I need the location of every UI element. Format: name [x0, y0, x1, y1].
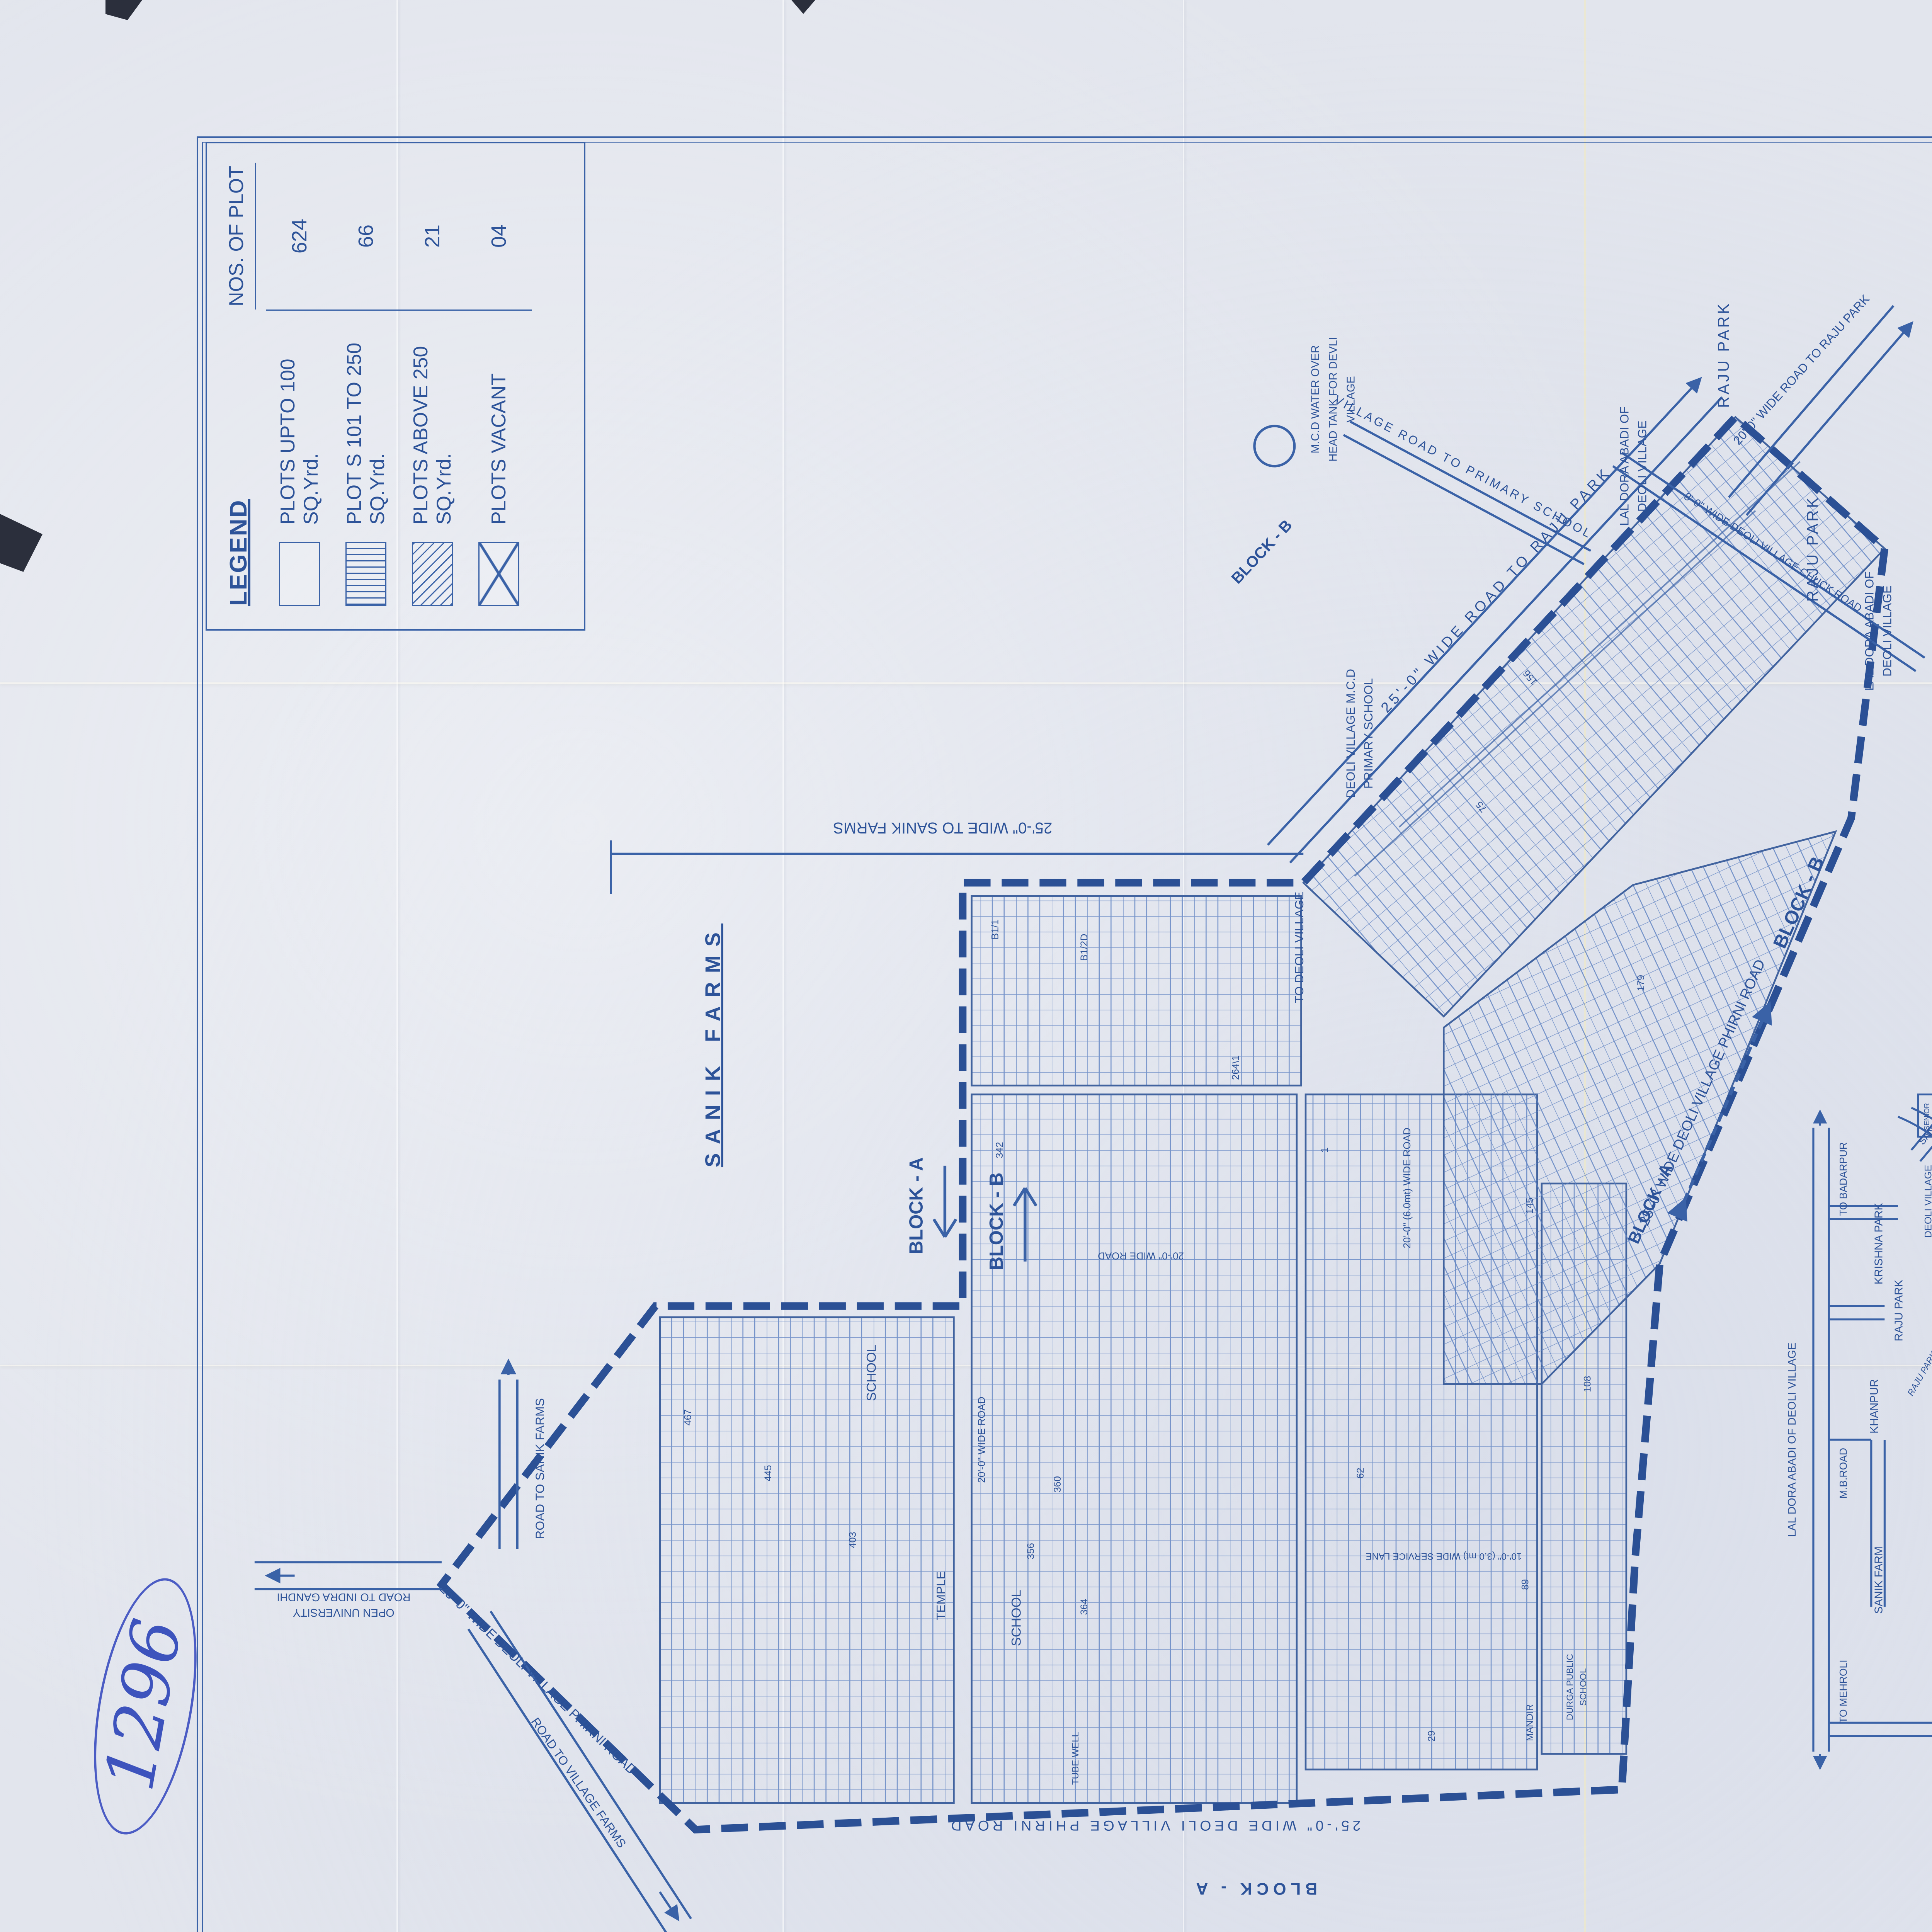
area-label-primary-school: PRIMARY SCHOOL: [1361, 678, 1375, 789]
plot-block-west: [660, 1317, 954, 1803]
road-label: 20'-0" WIDE ROAD: [976, 1396, 987, 1483]
block-a-marker: BLOCK - A: [906, 1157, 927, 1254]
plot-number: 264\1: [1230, 1055, 1241, 1080]
road-label: 25'-0" WIDE TO SANIK FARMS: [833, 819, 1052, 837]
road-label: VILLAGE ROAD TO PRIMARY SCHOOL: [1332, 393, 1595, 541]
area-label-raju-park: RAJU PARK: [1714, 301, 1732, 408]
key-label: M.B.ROAD: [1837, 1448, 1849, 1498]
plot-number: 89: [1520, 1579, 1531, 1590]
road-label: OPEN UNIVERSITY: [293, 1606, 394, 1619]
road-school: [1344, 422, 1591, 564]
area-label-lal-dora: LAL DORA ABADI OF: [1862, 571, 1876, 691]
plot-block-mid: [972, 1094, 1297, 1803]
plot-number: B1/1: [990, 920, 1001, 940]
area-label-lal-dora: LAL DORA ABADI OF: [1617, 406, 1631, 526]
key-label: RAJU PARK: [1905, 1349, 1932, 1398]
building-tube-well: TUBE WELL: [1070, 1732, 1081, 1785]
key-label: SANIK FARM: [1873, 1546, 1885, 1614]
road-label: 25'-0" WIDE DEOLI VILLAGE PHIRNI ROAD: [437, 1582, 639, 1778]
key-label: KRISHNA PARK: [1873, 1203, 1885, 1284]
plot-number: 342: [994, 1142, 1005, 1158]
water-tank-icon: [1254, 426, 1294, 466]
plot-number: 62: [1355, 1468, 1366, 1478]
plot-number: 364: [1079, 1599, 1090, 1615]
area-label-raju-park: RAJU PARK: [1803, 495, 1821, 602]
plot-number: 1: [1320, 1147, 1330, 1153]
plot-block-b1: [972, 896, 1301, 1085]
road-label: ROAD TO SANIK FARMS: [533, 1398, 547, 1539]
block-b-top-label: BLOCK - B: [1228, 516, 1296, 587]
road-label: 20'-0" WIDE ROAD: [1098, 1250, 1184, 1261]
road-label: 20'-0" (6.0mt) WIDE ROAD: [1402, 1128, 1413, 1248]
area-label-lal-dora: DEOLI VILLAGE: [1880, 585, 1894, 677]
block-b-marker: BLOCK - B: [986, 1172, 1007, 1270]
building-school: SCHOOL: [1009, 1590, 1024, 1646]
plot-number: 145: [1524, 1197, 1535, 1214]
blueprint-sheet: { "sheet": { "number": "1296" }, "legend…: [0, 0, 1932, 1932]
building-temple: TEMPLE: [934, 1571, 947, 1620]
key-road-mb: [1813, 1128, 1829, 1752]
area-label-primary-school: DEOLI VILLAGE M.C.D: [1344, 669, 1357, 798]
area-label-sanik-farms: SANIK FARMS: [701, 923, 724, 1167]
key-plan-labels: LAL DORA ABADI OF DEOLI VILLAGE TO MEHRO…: [1786, 1082, 1932, 1723]
area-label-water-tank: HEAD TANK FOR DEVLI: [1327, 337, 1340, 461]
area-label-water-tank: M.C.D WATER OVER: [1310, 345, 1322, 453]
key-label: LAL DORA ABADI OF DEOLI VILLAGE: [1786, 1342, 1798, 1537]
building-school: SCHOOL: [864, 1345, 879, 1401]
sheet-number: 1296: [90, 1613, 197, 1796]
building-durga-school: DURGA PUBLIC: [1565, 1654, 1575, 1720]
key-label: TO MEHROLI: [1837, 1660, 1849, 1723]
road-label: TO DEOLI VILLAGE: [1292, 892, 1306, 1003]
scan-mark: [105, 0, 142, 20]
plot-number: 360: [1052, 1476, 1063, 1492]
key-label: KHANPUR: [1868, 1379, 1881, 1434]
plot-number: 108: [1582, 1376, 1593, 1392]
road-label: 20'-0" WIDE ROAD TO RAJU PARK: [1730, 292, 1872, 447]
plot-number: 467: [682, 1409, 693, 1425]
plot-number: 403: [847, 1532, 858, 1548]
plot-number: B1/2D: [1079, 934, 1090, 961]
block-a-arrow-icon: [934, 1166, 956, 1237]
key-location-plan: LAL DORA ABADI OF DEOLI VILLAGE TO MEHRO…: [1786, 1031, 1932, 1849]
key-road-branch: [1829, 1306, 1884, 1320]
road-label: 10'-0" (3.0 mt) WIDE SERVICE LANE: [1366, 1551, 1522, 1561]
layout-plan: BLOCK - A BLOCK - B 25'-0" WIDE TO SANIK…: [197, 136, 1932, 1932]
plot-number: 445: [763, 1465, 774, 1481]
scan-mark: [791, 0, 815, 14]
area-label-water-tank: VILLAGE: [1345, 376, 1357, 422]
key-label: RAJU PARK: [1893, 1280, 1905, 1342]
scan-mark: [0, 514, 43, 572]
plot-number: 179: [1636, 975, 1646, 991]
key-label: DEOLI VILLAGE: [1923, 1165, 1932, 1238]
key-label: SENIOR: [1923, 1103, 1931, 1131]
road-label: ROAD TO INDRA GANDHI: [277, 1591, 410, 1603]
building-mandir: MANDIR: [1525, 1704, 1535, 1741]
plot-number: 29: [1426, 1731, 1437, 1742]
road-to-sanik: [500, 1379, 517, 1549]
area-label-lal-dora: DEOLI VILLAGE: [1635, 420, 1649, 512]
road-label: 25'-0" WIDE DEOLI VILLAGE PHIRNI ROAD: [948, 1818, 1361, 1834]
building-durga-school: SCHOOL: [1578, 1668, 1588, 1706]
plot-number: 356: [1026, 1543, 1036, 1559]
road-label: ROAD TO VILLAGE FARMS: [529, 1715, 629, 1850]
block-a-bottom-label: BLOCK - A: [1192, 1879, 1317, 1898]
key-label: TO BADARPUR: [1837, 1142, 1849, 1216]
